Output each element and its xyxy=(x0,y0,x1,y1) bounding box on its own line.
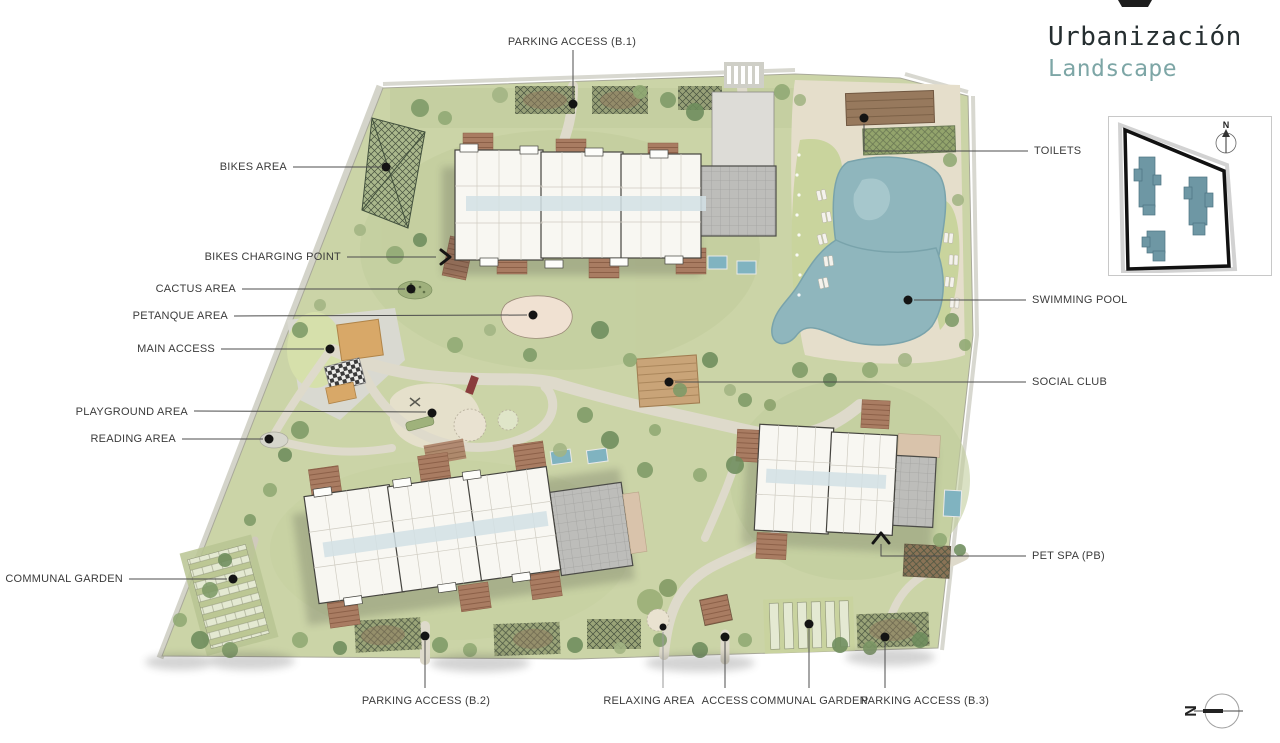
label-main-access: MAIN ACCESS xyxy=(137,343,215,355)
label-parking-access-b3: PARKING ACCESS (B.3) xyxy=(861,695,989,707)
label-petanque-area: PETANQUE AREA xyxy=(133,310,228,322)
north-compass-icon: N xyxy=(1180,686,1260,738)
access-kiosk xyxy=(700,594,733,625)
key-plan-inset: N xyxy=(1108,116,1272,276)
label-swimming-pool: SWIMMING POOL xyxy=(1032,294,1128,306)
label-communal-garden-bottom: COMMUNAL GARDEN xyxy=(750,695,868,707)
label-playground-area: PLAYGROUND AREA xyxy=(76,406,188,418)
label-toilets: TOILETS xyxy=(1034,145,1081,157)
label-social-club: SOCIAL CLUB xyxy=(1032,376,1107,388)
inset-north-compass-icon: N xyxy=(1216,120,1236,153)
cropped-mark xyxy=(1118,0,1152,7)
label-parking-access-b1: PARKING ACCESS (B.1) xyxy=(508,36,636,48)
label-communal-garden-left: COMMUNAL GARDEN xyxy=(5,573,123,585)
label-reading-area: READING AREA xyxy=(90,433,176,445)
title-block: Urbanización Landscape xyxy=(1048,22,1242,82)
label-cactus-area: CACTUS AREA xyxy=(156,283,236,295)
label-parking-access-b2: PARKING ACCESS (B.2) xyxy=(362,695,490,707)
key-plan-drawing: N xyxy=(1109,117,1269,273)
label-relaxing-area: RELAXING AREA xyxy=(603,695,694,707)
label-bikes-area: BIKES AREA xyxy=(220,161,287,173)
project-title: Urbanización xyxy=(1048,22,1242,52)
label-pet-spa: PET SPA (PB) xyxy=(1032,550,1105,562)
landscape-plan-canvas: PARKING ACCESS (B.1) BIKES AREA BIKES CH… xyxy=(0,0,1280,742)
north-compass: N xyxy=(1180,686,1260,738)
label-bikes-charging-point: BIKES CHARGING POINT xyxy=(205,251,341,263)
project-subtitle: Landscape xyxy=(1048,56,1242,82)
site-plan-drawing xyxy=(0,0,1280,742)
label-access: ACCESS xyxy=(702,695,749,707)
reading-area-shape xyxy=(260,432,288,448)
inset-north-label: N xyxy=(1223,120,1230,130)
crosswalk xyxy=(724,62,764,88)
compass-north-label: N xyxy=(1183,705,1200,717)
